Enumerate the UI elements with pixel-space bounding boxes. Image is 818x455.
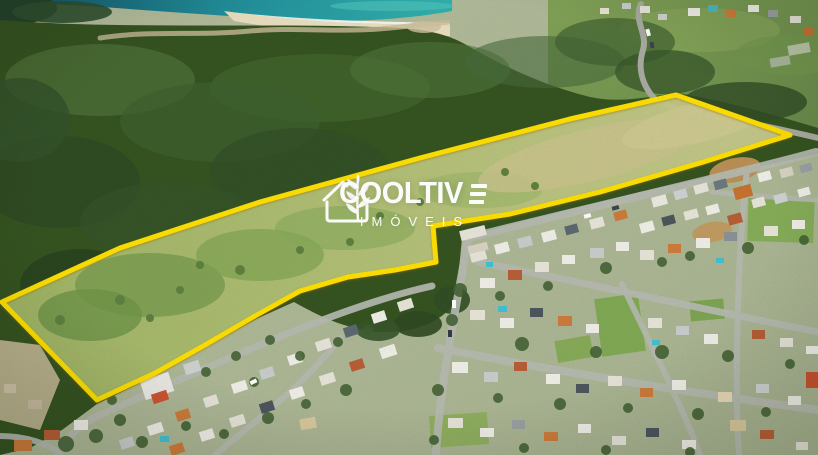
- aerial-photo: COOLTIV IMÓVEIS: [0, 0, 818, 455]
- vignette: [0, 0, 818, 455]
- scene-svg: [0, 0, 818, 455]
